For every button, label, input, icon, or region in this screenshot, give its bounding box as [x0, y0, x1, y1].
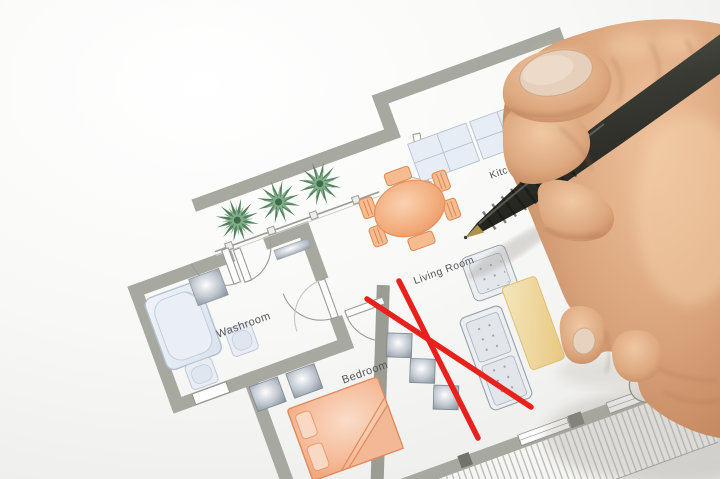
fingertip-with-nail [560, 306, 606, 364]
fingertip-pad [612, 330, 662, 382]
dresser [386, 333, 412, 358]
scene-svg: Washroom Bedroom Living Room Kitchen [0, 0, 720, 479]
dresser [410, 359, 436, 384]
photo-scene: Washroom Bedroom Living Room Kitchen [0, 0, 720, 479]
pen-point [464, 236, 467, 239]
